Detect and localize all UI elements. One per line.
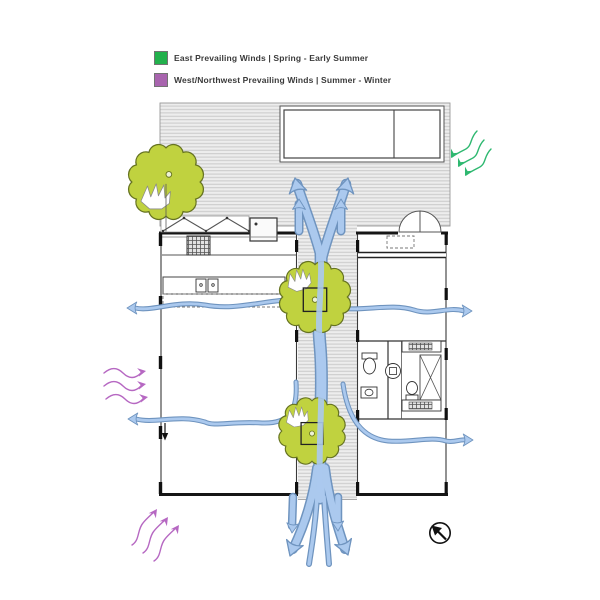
west-wind-arrows-mid bbox=[104, 367, 149, 404]
sink-icon bbox=[208, 279, 218, 292]
pool bbox=[280, 106, 444, 162]
west-wind-arrowhead bbox=[149, 506, 161, 518]
legend-item-east-winds: East Prevailing Winds | Spring - Early S… bbox=[155, 52, 391, 64]
east-wind-arrows bbox=[447, 131, 491, 178]
breeze-arrowhead-left bbox=[127, 302, 137, 314]
north-arrow-icon bbox=[430, 523, 450, 543]
breeze-arrowhead-left bbox=[128, 413, 138, 425]
stove-icon bbox=[187, 236, 210, 255]
east-winds-label: East Prevailing Winds | Spring - Early S… bbox=[174, 53, 368, 63]
vanity-shelf bbox=[402, 341, 441, 352]
breeze-arrowhead-right bbox=[462, 305, 472, 317]
tree-icon bbox=[279, 398, 345, 464]
vanity-shelf bbox=[402, 400, 441, 411]
east-winds-swatch bbox=[155, 52, 167, 64]
interior-wall bbox=[358, 253, 446, 258]
toilet-icon bbox=[406, 382, 418, 401]
west-winds-swatch bbox=[155, 74, 167, 86]
legend: East Prevailing Winds | Spring - Early S… bbox=[155, 52, 391, 96]
refrigerator-icon bbox=[250, 218, 277, 241]
sink-icon bbox=[361, 387, 377, 398]
west-wind-arrowhead bbox=[171, 522, 183, 534]
west-wind-arrows-sw bbox=[132, 506, 183, 561]
sink-icon bbox=[196, 279, 206, 292]
right-building bbox=[356, 211, 448, 495]
basin-icon bbox=[386, 364, 401, 379]
wind-diagram-page: East Prevailing Winds | Spring - Early S… bbox=[0, 0, 600, 600]
breeze-arrowhead-right bbox=[463, 434, 473, 446]
legend-item-west-winds: West/Northwest Prevailing Winds | Summer… bbox=[155, 74, 391, 86]
tree-icon bbox=[280, 262, 351, 333]
toilet-icon bbox=[362, 353, 377, 374]
west-wind-arrowhead bbox=[160, 514, 172, 526]
west-winds-label: West/Northwest Prevailing Winds | Summer… bbox=[174, 75, 391, 85]
left-building bbox=[159, 216, 298, 495]
